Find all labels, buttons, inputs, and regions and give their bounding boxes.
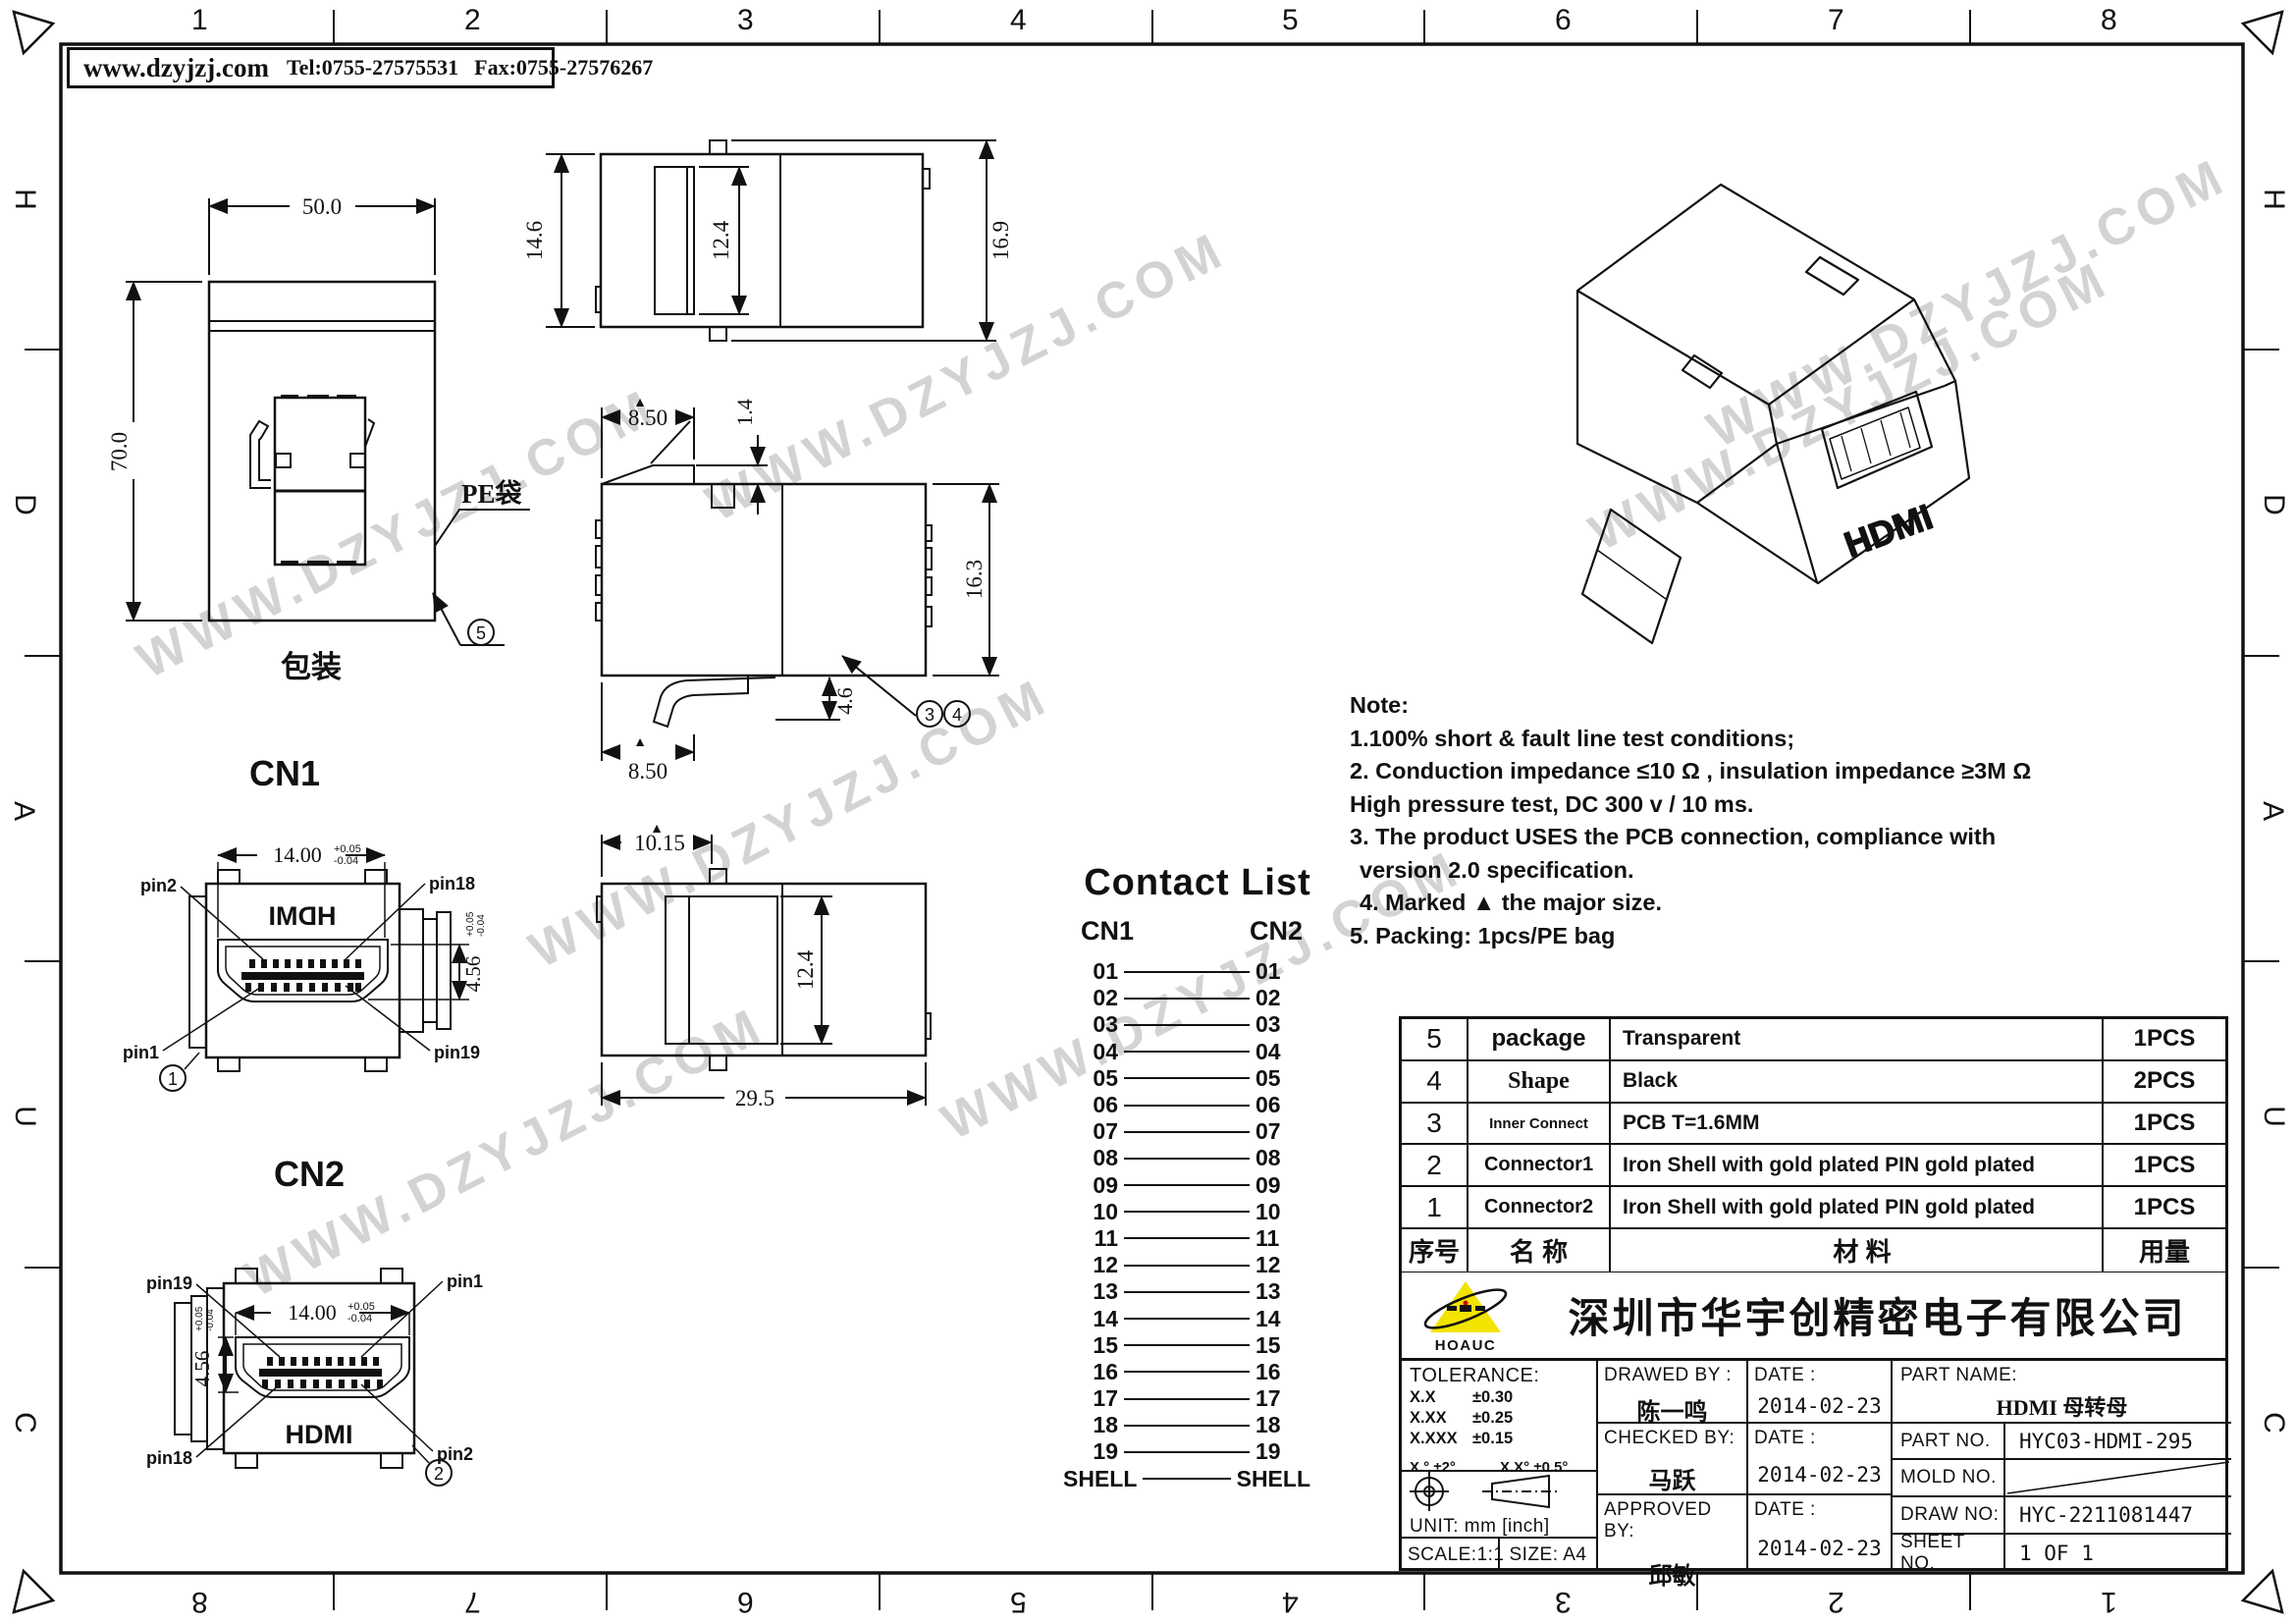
wire-line [1124,1105,1250,1107]
company-row: HOAUC 深圳市华宇创精密电子有限公司 [1399,1272,2228,1361]
packaging-view: 50.0 70.0 PE袋 包装 5 [107,194,530,684]
contact-row: 1313 [1063,1278,1310,1305]
wire-line [1124,1425,1250,1427]
svg-text:1.4: 1.4 [732,399,757,426]
svg-text:4.6: 4.6 [832,687,857,715]
svg-text:CN2: CN2 [274,1154,345,1194]
svg-text:pin19: pin19 [146,1273,192,1293]
svg-text:▲: ▲ [633,394,647,409]
bom-row: 1 Connector2 Iron Shell with gold plated… [1402,1187,2225,1229]
contact-col-cn2: CN2 [1250,916,1303,947]
hdmi-logo-3d: HDMI [1839,496,1937,565]
scale-cell: SCALE:1:1 [1402,1539,1500,1571]
contact-list-headers: CN1 CN2 [1065,916,1312,947]
projection-symbol-icon [1402,1472,1594,1511]
contact-list-title: Contact List [1036,862,1360,904]
contact-row: 0505 [1063,1065,1310,1092]
svg-text:2: 2 [434,1464,444,1484]
draw-no-label-cell: DRAW NO: [1893,1497,2005,1535]
svg-text:pin18: pin18 [429,874,475,893]
website-link[interactable]: www.dzyjzj.com [83,53,269,83]
unit-label: UNIT: mm [inch] [1402,1516,1596,1538]
wire-line [1124,1211,1250,1213]
note-line: 4. Marked ▲ the major size. [1350,890,2233,923]
svg-text:14.6: 14.6 [522,221,547,260]
svg-text:3: 3 [925,705,934,725]
part-no-label-cell: PART NO. [1893,1424,2005,1460]
contact-row: 1515 [1063,1332,1310,1359]
draw-no-value-cell: HYC-2211081447 [2005,1497,2231,1535]
contact-row: 1919 [1063,1438,1310,1465]
svg-text:+0.05: +0.05 [465,911,476,937]
svg-text:-0.04: -0.04 [334,855,358,867]
note-line: version 2.0 specification. [1350,857,2233,891]
wire-line [1124,1051,1250,1053]
svg-text:HOAUC: HOAUC [1435,1337,1497,1354]
contact-row: 0404 [1063,1039,1310,1065]
corner-mark-icon [2243,1571,2282,1612]
svg-text:▲: ▲ [633,733,647,749]
svg-text:50.0: 50.0 [302,194,342,219]
svg-text:+0.05: +0.05 [194,1306,205,1331]
bom-header-row: 序号 名 称 材 料 用量 [1402,1229,2225,1272]
mold-no-label-cell: MOLD NO. [1893,1460,2005,1497]
svg-text:+0.05: +0.05 [347,1301,375,1313]
contact-row: 1414 [1063,1305,1310,1331]
title-block: TOLERANCE: X.X±0.30 X.XX±0.25 X.XXX±0.15… [1399,1361,2228,1571]
wire-line [1124,1344,1250,1346]
bom-row: 5 package Transparent 1PCS [1402,1019,2225,1061]
corner-mark-icon [2243,12,2282,53]
svg-text:-0.04: -0.04 [347,1313,372,1325]
bom-row: 4 Shape Black 2PCS [1402,1061,2225,1104]
svg-text:包装: 包装 [281,650,342,684]
bom-table: 5 package Transparent 1PCS 4 Shape Black… [1399,1016,2228,1274]
svg-text:pin18: pin18 [146,1448,192,1468]
svg-text:+0.05: +0.05 [334,843,361,855]
side-view: 8.50 ▲ 1.4 16.3 4.6 8.50 ▲ 3 [596,394,999,784]
approved-by-cell: APPROVED BY: 邱敏 [1598,1495,1748,1571]
note-line: 2. Conduction impedance ≤10 Ω , insulati… [1350,758,2233,791]
wire-line [1124,1024,1250,1026]
svg-text:-0.04: -0.04 [205,1309,216,1331]
wire-line [1124,1184,1250,1186]
svg-text:14.00: 14.00 [288,1300,337,1325]
contact-row: 1212 [1063,1252,1310,1278]
top-view: 14.6 12.4 16.9 [522,140,1013,341]
wire-line [1124,1371,1250,1373]
wire-line [1124,998,1250,1000]
svg-text:-0.04: -0.04 [476,914,487,937]
svg-text:16.9: 16.9 [988,221,1013,260]
checked-by-cell: CHECKED BY: 马跃 [1598,1424,1748,1495]
contact-row: 1717 [1063,1385,1310,1412]
hoauc-logo-icon: HOAUC [1403,1273,1528,1358]
note-line: 5. Packing: 1pcs/PE bag [1350,923,2233,956]
cn1-view: CN1 HDMI 14.00 +0.05 -0.0 [123,753,487,1091]
svg-text:12.4: 12.4 [709,220,733,260]
wire-line [1124,1077,1250,1079]
contact-row: 0606 [1063,1092,1310,1118]
contact-row: 0909 [1063,1172,1310,1199]
contact-row: 1818 [1063,1412,1310,1438]
fax-text: Fax:0755-27576267 [474,55,653,81]
tel-text: Tel:0755-27575531 [287,55,458,81]
bom-row: 2 Connector1 Iron Shell with gold plated… [1402,1145,2225,1187]
wire-line [1124,1398,1250,1400]
wire-line [1124,1451,1250,1453]
mold-no-value-cell [2005,1460,2231,1497]
svg-text:12.4: 12.4 [793,949,818,990]
svg-text:▲: ▲ [650,820,664,836]
wire-line [1124,971,1250,973]
svg-text:70.0: 70.0 [107,432,132,471]
wire-line [1124,1291,1250,1293]
wire-line [1124,1237,1250,1239]
svg-text:5: 5 [476,623,486,643]
svg-text:14.00: 14.00 [273,842,322,867]
note-line: 1.100% short & fault line test condition… [1350,726,2233,759]
isometric-view: HDMI [1577,185,1969,643]
company-name: 深圳市华宇创精密电子有限公司 [1529,1272,2225,1358]
corner-mark-icon [14,1571,53,1612]
wire-line [1143,1478,1230,1480]
contact-row: 0202 [1063,985,1310,1011]
sheet-no-value-cell: 1 OF 1 [2005,1535,2231,1571]
svg-text:8.50: 8.50 [628,759,667,784]
bom-row: 3 Inner Connect PCB T=1.6MM 1PCS [1402,1104,2225,1146]
note-line: 3. The product USES the PCB connection, … [1350,824,2233,857]
contact-row: 1111 [1063,1225,1310,1252]
notes-block: Note: 1.100% short & fault line test con… [1350,692,2233,955]
contact-row: 0101 [1063,958,1310,985]
contact-row-shell: SHELLSHELL [1063,1466,1310,1492]
contact-row: 1616 [1063,1359,1310,1385]
svg-text:1: 1 [168,1069,178,1089]
wire-line [1124,1265,1250,1267]
corner-mark-icon [14,12,53,53]
contact-col-cn1: CN1 [1081,916,1134,947]
svg-text:CN1: CN1 [249,753,320,793]
hdmi-logo-mirrored: HDMI [269,901,337,931]
hdmi-logo: HDMI [286,1420,353,1449]
cn2-view: CN2 HDMI 14.00 +0.05 -0.04 [146,1154,483,1486]
approved-date-cell: DATE : 2014-02-23 [1748,1495,1893,1571]
svg-text:4: 4 [952,705,962,725]
svg-text:pin2: pin2 [140,876,177,895]
contact-row: 0808 [1063,1145,1310,1171]
drawed-date-cell: DATE : 2014-02-23 [1748,1361,1893,1424]
part-no-value-cell: HYC03-HDMI-295 [2005,1424,2231,1460]
part-name-cell: PART NAME: HDMI 母转母 [1893,1361,2231,1424]
contact-row: 0303 [1063,1011,1310,1038]
wire-line [1124,1131,1250,1133]
mold-no-diagonal-line [2005,1460,2231,1495]
checked-date-cell: DATE : 2014-02-23 [1748,1424,1893,1495]
note-line: High pressure test, DC 300 v / 10 ms. [1350,791,2233,825]
svg-text:PE袋: PE袋 [461,479,523,509]
drawed-by-cell: DRAWED BY : 陈一鸣 [1598,1361,1748,1424]
contact-list: 0101 0202 0303 0404 0505 0606 0707 0808 … [1063,958,1310,1492]
wire-line [1124,1158,1250,1160]
contact-row: 0707 [1063,1118,1310,1145]
drawing-sheet: WWW.DZYJZJ.COM WWW.DZYJZJ.COM WWW.DZYJZJ… [0,0,2296,1624]
contact-row: 1010 [1063,1199,1310,1225]
note-line: Note: [1350,692,2233,726]
bottom-view: 10.15 ▲ 12.4 29.5 [597,820,931,1110]
svg-text:29.5: 29.5 [735,1086,774,1110]
size-cell: SIZE: A4 [1500,1539,1598,1571]
sheet-no-label-cell: SHEET NO. [1893,1535,2005,1571]
svg-text:4.56: 4.56 [190,1351,214,1387]
wire-line [1124,1318,1250,1320]
svg-text:pin1: pin1 [123,1043,159,1062]
svg-text:4.56: 4.56 [461,956,485,993]
company-logo: HOAUC [1402,1272,1529,1358]
svg-text:pin19: pin19 [434,1043,480,1062]
header-contact-bar: www.dzyjzj.com Tel:0755-27575531 Fax:075… [67,47,555,88]
svg-text:16.3: 16.3 [962,560,987,599]
tolerance-cell: TOLERANCE: X.X±0.30 X.XX±0.25 X.XXX±0.15… [1402,1361,1598,1472]
svg-text:pin1: pin1 [447,1272,483,1291]
projection-unit-cell: UNIT: mm [inch] [1402,1472,1598,1539]
